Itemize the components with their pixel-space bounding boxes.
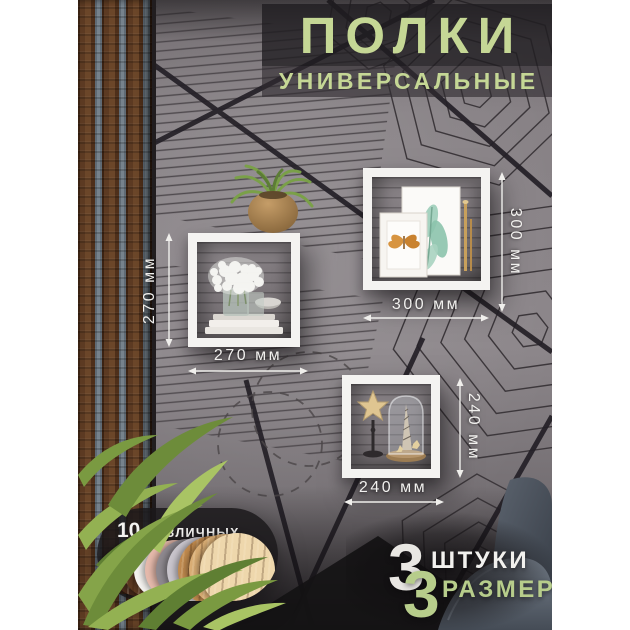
- potted-plant: [228, 162, 318, 234]
- glass-cloche: [386, 396, 426, 462]
- headline: ПОЛКИ: [291, 10, 524, 61]
- pieces-label: ШТУКИ: [431, 549, 529, 573]
- sizes-count: 3: [403, 561, 440, 627]
- shelf-300-decor: [372, 177, 481, 281]
- dim-300-height-label: 300 мм: [506, 208, 524, 276]
- subheadline: УНИВЕРСАЛЬНЫЕ: [275, 70, 538, 93]
- shelf-240: [342, 375, 440, 478]
- shelf-300-interior: [372, 177, 481, 281]
- product-card: ПОЛКИ УНИВЕРСАЛЬНЫЕ: [0, 0, 630, 630]
- dim-300-width-label: 300 мм: [392, 296, 460, 314]
- book-stack: [205, 314, 283, 334]
- shelf-270-decor: [197, 242, 291, 338]
- subtitle-backdrop: УНИВЕРСАЛЬНЫЕ: [262, 66, 552, 97]
- dim-240-height-label: 240 мм: [464, 393, 482, 461]
- gypsophila-bouquet: [208, 257, 264, 295]
- dim-270-height-label: 270 мм: [141, 256, 159, 324]
- starfish-on-stand: [358, 391, 388, 458]
- shelf-240-decor: [351, 384, 431, 469]
- pot-soil: [259, 191, 287, 199]
- shelf-240-interior: [351, 384, 431, 469]
- candle-holder: [463, 200, 473, 271]
- shelf-270: [188, 233, 300, 347]
- product-photo: ПОЛКИ УНИВЕРСАЛЬНЫЕ: [78, 0, 552, 630]
- palm-fronds: [78, 417, 286, 630]
- dim-270-vertical-arrow: [164, 233, 174, 347]
- title-backdrop: ПОЛКИ: [262, 4, 552, 66]
- dim-240-width-label: 240 мм: [359, 479, 427, 497]
- palm-plant: [78, 355, 288, 630]
- sizes-label: РАЗМЕРА: [442, 578, 552, 602]
- shelf-270-interior: [197, 242, 291, 338]
- art-frame-butterfly: [380, 213, 427, 277]
- dim-300-horizontal-arrow: [363, 313, 489, 323]
- shelf-300: [363, 168, 490, 290]
